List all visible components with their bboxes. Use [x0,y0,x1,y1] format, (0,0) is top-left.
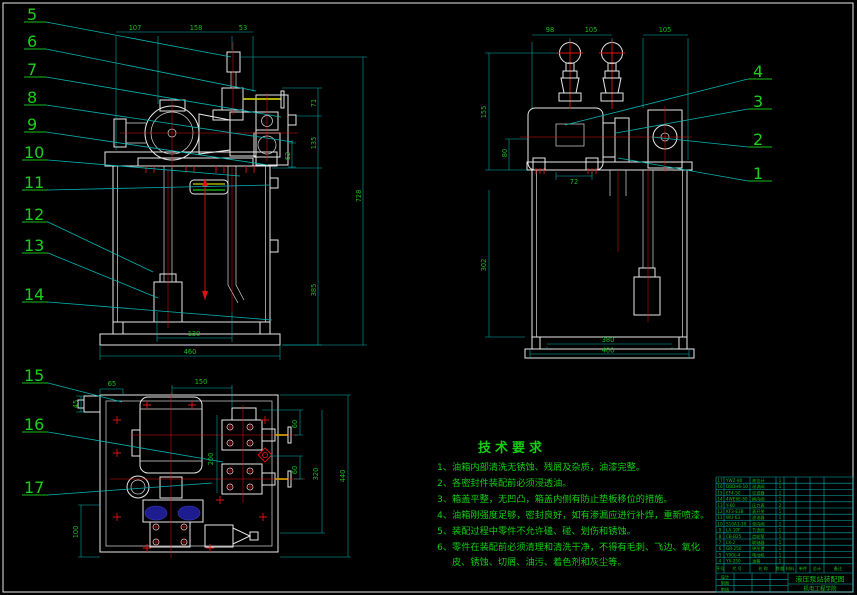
callout-2: 2 [652,130,772,149]
bom-cell: S10A1-30 [726,521,747,526]
tech-title: 技术要求 [478,440,546,456]
dim-front-130: 130 [188,330,201,338]
svg-text:代 号: 代 号 [732,565,742,572]
dim-side-302: 302 [480,259,488,272]
svg-text:5: 5 [27,5,37,24]
dim-side-380: 380 [602,336,615,344]
callout-17: 17 [22,478,212,497]
bom-cell: 8 [719,534,722,539]
dim-front-71: 71 [310,99,318,107]
dim-top-60a: 60 [291,420,299,428]
dim-side-155: 155 [480,106,488,119]
svg-text:15: 15 [24,366,44,385]
tb-field-design: 设计 [721,573,729,580]
svg-text:11: 11 [24,173,44,192]
svg-text:备注: 备注 [834,565,843,572]
callouts: 5 6 7 8 9 10 11 12 13 14 15 16 17 4 3 2 … [22,5,772,497]
bom-cell: 1 [779,478,782,483]
svg-text:10: 10 [24,143,44,162]
svg-text:12: 12 [24,205,44,224]
svg-text:9: 9 [27,115,37,134]
svg-text:7: 7 [27,60,37,79]
callout-4: 4 [565,62,772,125]
callout-6: 6 [24,32,256,91]
svg-text:6: 6 [27,32,37,51]
bom-cell: 16 [717,484,723,489]
svg-text:2: 2 [753,130,763,149]
bom-cell: 13 [717,503,723,508]
svg-text:总计: 总计 [813,565,821,572]
bom-cell: YX-250 [725,559,741,564]
bom-cell: 1 [779,528,782,533]
dim-side-105a: 105 [585,26,598,34]
bom-cell: 1 [779,546,782,551]
bom-cell: WU-63 [726,515,740,520]
drawing-canvas: 107 158 53 71 135 62 385 728 130 460 [0,0,857,595]
bom-cell: 1 [779,552,782,557]
dim-front-135: 135 [310,137,318,150]
bom-cell: 1 [779,509,782,514]
svg-text:序号: 序号 [716,565,724,572]
bom-cell: 4 [719,559,722,564]
bom-cell: 1 [779,534,782,539]
callout-3: 3 [616,92,772,133]
bom-cell: 1 [779,540,782,545]
side-view: 98 105 105 155 80 302 72 380 400 [480,26,694,358]
dim-top-440: 440 [339,470,347,483]
bom-cell: 1 [779,497,782,502]
dim-top-45: 45 [72,400,80,408]
callout-16: 16 [22,415,223,462]
svg-text:14: 14 [24,285,44,304]
tech-line-4: 4、油箱刚强度足够，密封良好，如有渗漏应进行补焊，重新喷漆。 [437,509,709,521]
dim-side-105b: 105 [659,26,672,34]
bom-table: 17YWZ-80液位计116DBDH6-10溢流阀115EF4-50空滤器114… [716,477,853,573]
technical-requirements: 技术要求 1、油箱内部清洗无锈蚀、残屑及杂质，油漆完整。 2、各密封件装配前必须… [437,440,709,568]
bom-cell: LA-10F [726,528,741,533]
bom-cell: 9 [719,528,722,533]
dim-front-460: 460 [184,348,197,356]
svg-text:17: 17 [24,478,44,497]
tb-field-check: 审核 [721,586,730,593]
dim-front-62: 62 [284,152,292,160]
bom-cell: 2 [779,503,782,508]
bom-cell: 15 [717,490,723,495]
bom-cell: 17 [717,478,723,483]
dim-front-158: 158 [190,24,203,32]
svg-text:3: 3 [753,92,763,111]
bom-cell: 12 [717,509,723,514]
bom-cell: KF3-E3B [726,509,744,514]
bom-cell: 油箱 [752,558,760,565]
bom-cell: 4WE6E-50 [726,497,748,502]
bom-cell: 10 [717,521,723,526]
bom-cell: DBDH6-10 [726,484,748,489]
svg-text:16: 16 [24,415,44,434]
svg-text:8: 8 [27,88,37,107]
callout-10: 10 [22,143,240,176]
dim-front-107: 107 [129,24,142,32]
dim-side-80: 80 [501,149,509,157]
dim-top-100: 100 [72,526,80,539]
bom-cell: 7 [719,540,722,545]
dim-top-60b: 60 [291,466,299,474]
tech-line-1: 1、油箱内部清洗无锈蚀、残屑及杂质，油漆完整。 [437,461,645,473]
svg-text:1: 1 [753,164,763,183]
tech-line-6: 6、零件在装配前必须清理和清洗干净，不得有毛刺、飞边、氧化 [437,541,700,553]
tb-field-draw: 制图 [721,580,729,587]
dim-top-65: 65 [108,380,116,388]
tech-line-7: 皮、锈蚀、切屑、油污、着色剂和灰尘等。 [452,556,627,568]
callout-14: 14 [22,285,272,320]
top-view: 65 45 150 200 60 60 320 440 100 [72,378,351,558]
svg-text:4: 4 [753,62,763,81]
bom-cell: Y-60 [725,503,735,508]
bom-cell: LX-2 [726,540,736,545]
dim-front-385: 385 [310,284,318,297]
svg-text:材料: 材料 [786,565,795,572]
title-block: 设计 制图 审核 液压泵站装配图 机电工程学院 [716,573,853,593]
svg-text:单件: 单件 [799,565,807,572]
cad-viewport: 107 158 53 71 135 62 385 728 130 460 [0,0,857,595]
dim-top-150: 150 [195,378,208,386]
bom-cell: 1 [779,515,782,520]
dim-front-53: 53 [239,24,247,32]
bom-cell: 5 [719,552,722,557]
tech-line-5: 5、装配过程中零件不允许磕、碰、划伤和锈蚀。 [437,525,636,537]
bom-cell: EF4-50 [726,490,741,495]
dim-top-200: 200 [207,453,215,466]
dim-side-72: 72 [570,178,578,186]
bom-cell: CB-B25 [726,534,742,539]
bom-cell: 6 [719,546,722,551]
dim-top-320: 320 [312,468,320,481]
tb-org: 机电工程学院 [803,585,837,593]
bom-cell: 14 [717,497,723,502]
bom-cell: 1 [779,559,782,564]
callout-11: 11 [22,173,270,192]
bom-cell: Y90L-4 [725,552,741,557]
bom-cell: YWZ-80 [725,478,743,483]
dim-front-728: 728 [355,190,363,203]
bom-cell: 1 [779,521,782,526]
tech-line-2: 2、各密封件装配前必须浸透油。 [437,477,571,489]
dim-side-400: 400 [602,347,615,355]
bom-cell: 1 [779,484,782,489]
tech-line-3: 3、箱盖平整，无凹凸，箱盖内侧有防止垫板移位的措施。 [437,493,673,505]
tb-project-title: 液压泵站装配图 [796,575,845,584]
bom-rows: 17YWZ-80液位计116DBDH6-10溢流阀115EF4-50空滤器114… [716,477,853,565]
svg-text:名 称: 名 称 [758,565,768,572]
svg-text:数量: 数量 [776,565,784,572]
dim-side-98: 98 [546,26,554,34]
bom-cell: GR-250 [726,546,742,551]
bom-cell: 1 [779,490,782,495]
svg-text:13: 13 [24,236,44,255]
bom-cell: 11 [717,515,723,520]
